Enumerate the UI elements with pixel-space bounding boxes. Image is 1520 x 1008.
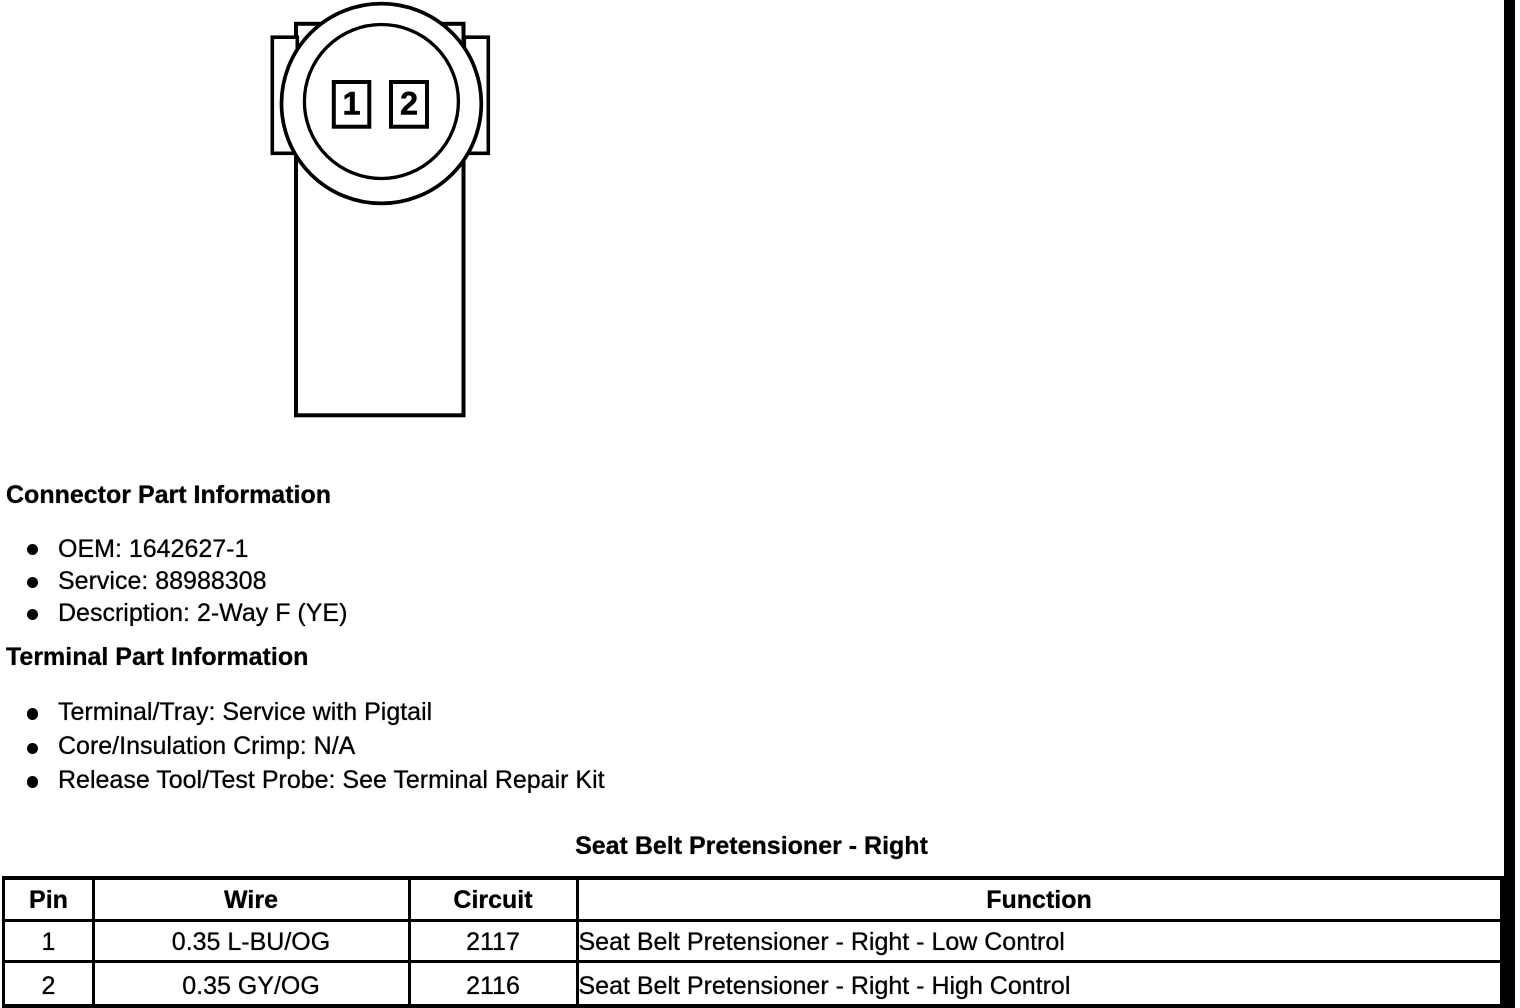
- svg-text:2: 2: [400, 86, 418, 122]
- svg-text:1: 1: [343, 86, 361, 122]
